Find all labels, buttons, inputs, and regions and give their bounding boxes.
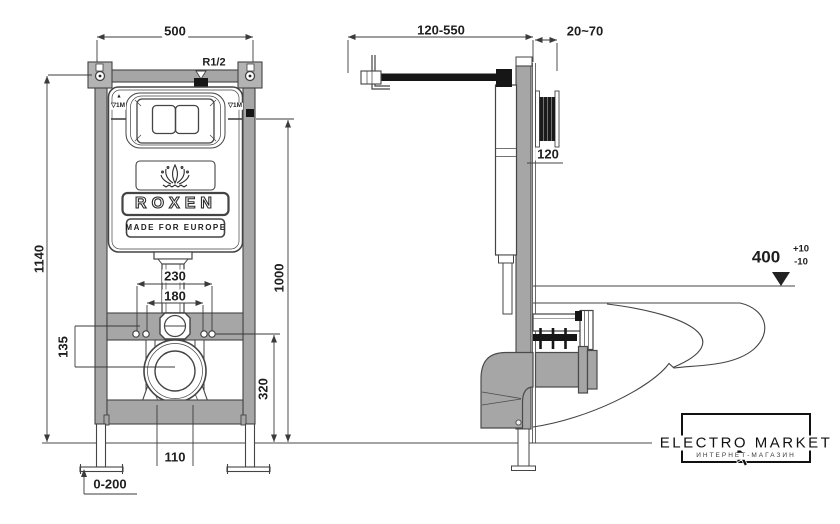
datum-triangle-icon	[772, 272, 790, 286]
level-mark-right: ▽1M	[227, 103, 243, 110]
dim-outlet-spacing: 110	[163, 451, 188, 464]
dim-side-offset: 135	[57, 334, 70, 360]
meter-mark	[246, 109, 254, 117]
side-post-cap	[516, 57, 532, 66]
watermark-title: ELECTRO MARKET	[655, 436, 838, 451]
wall-bracket-right	[238, 62, 262, 88]
water-supply-pipe	[361, 55, 498, 89]
brand-name: ROXEN	[133, 196, 219, 212]
inlet-fitting	[160, 313, 190, 339]
side-foot	[512, 429, 536, 471]
technical-drawing: 500 R1/2 1140 1000 230 180 135 320 110 0…	[0, 0, 840, 524]
dim-total-height: 1140	[33, 243, 46, 275]
frame-top-bar	[90, 70, 260, 82]
dim-fixing-inner: 180	[162, 290, 188, 303]
dim-front-width: 500	[162, 25, 188, 38]
frame-post-left	[95, 82, 107, 424]
flush-pipe	[533, 311, 593, 350]
dim-bowl-height: 400	[750, 249, 782, 266]
frame-post-right	[243, 82, 255, 424]
lower-crossbar	[107, 400, 243, 424]
side-flush-plate	[536, 91, 560, 147]
dim-inlet-depth-range: 120-550	[415, 24, 467, 37]
dim-finish-thickness: 20~70	[565, 25, 606, 38]
dim-actuation-height: 1000	[273, 262, 286, 295]
level-arrow-mark: ▲	[115, 94, 122, 100]
dim-bowl-height-minus: -10	[792, 257, 810, 267]
side-view-drawing	[361, 55, 795, 471]
dim-plate-offset: 120	[535, 148, 561, 161]
dim-outlet-height: 320	[257, 376, 270, 402]
dim-feet-adjust: 0-200	[91, 478, 128, 491]
dim-inlet-thread: R1/2	[200, 58, 227, 69]
drain-outlet	[144, 340, 206, 402]
level-mark-left: ▽1M	[110, 103, 126, 110]
watermark-subtitle: ИНТЕРНЕТ-МАГАЗИН	[693, 453, 799, 460]
lotus-crown-icon	[157, 163, 193, 189]
brand-tagline: MADE FOR EUROPE	[123, 224, 228, 232]
dim-fixing-outer: 230	[162, 270, 188, 283]
side-cistern	[496, 69, 517, 314]
dim-bowl-height-plus: +10	[791, 244, 811, 254]
